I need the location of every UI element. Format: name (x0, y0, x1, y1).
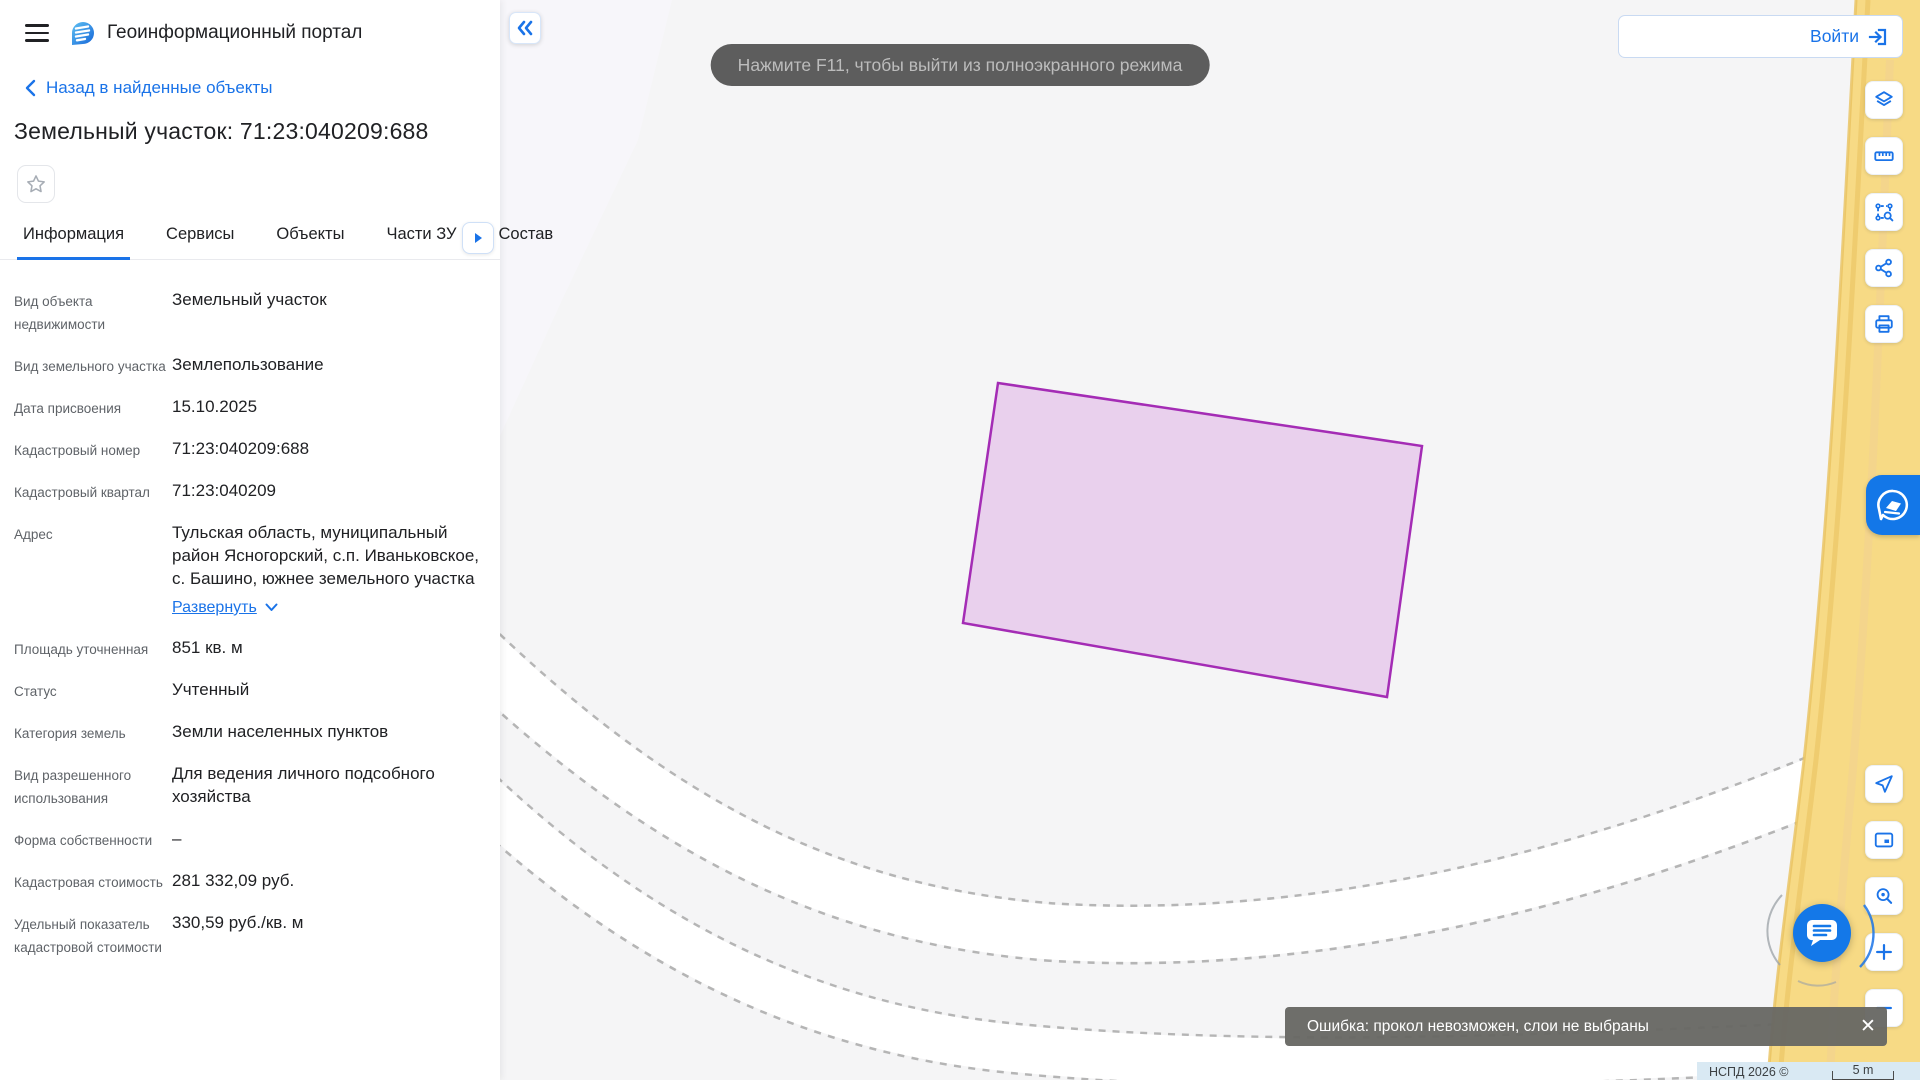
print-button[interactable] (1865, 305, 1903, 343)
field-value: Земли населенных пунктов (172, 720, 486, 745)
field-value: 71:23:040209 (172, 479, 486, 504)
field-label: Кадастровый номер (14, 437, 172, 462)
map-canvas[interactable] (500, 0, 1920, 1080)
layers-icon (1873, 89, 1895, 111)
field-list: Вид объекта недвижимостиЗемельный участо… (0, 260, 500, 959)
tab-0[interactable]: Информация (17, 225, 130, 260)
field-row: Кадастровый квартал71:23:040209 (14, 479, 486, 504)
share-icon (1873, 257, 1895, 279)
fullscreen-hint-toast: Нажмите F11, чтобы выйти из полноэкранно… (711, 44, 1210, 86)
star-icon (25, 173, 47, 195)
menu-icon[interactable] (25, 24, 49, 42)
page-title: Земельный участок: 71:23:040209:688 (14, 118, 486, 145)
collapse-panel-button[interactable] (509, 12, 541, 44)
favorite-button[interactable] (17, 165, 55, 203)
field-row: Форма собственности– (14, 827, 486, 852)
field-label: Адрес (14, 521, 172, 619)
expand-address-link[interactable]: Развернуть (172, 596, 278, 619)
field-row: СтатусУчтенный (14, 678, 486, 703)
field-value: 71:23:040209:688 (172, 437, 486, 462)
field-value: 851 кв. м (172, 636, 486, 661)
nspd-logo-tab[interactable] (1866, 475, 1920, 535)
map-attribution: НСПД 2026 © (1709, 1065, 1788, 1079)
chat-bubble-icon (1806, 918, 1838, 948)
tab-3[interactable]: Части ЗУ (380, 225, 462, 259)
chevron-down-icon (265, 603, 278, 612)
field-label: Вид разрешенного использования (14, 762, 172, 810)
field-value: Для ведения личного подсобного хозяйства (172, 762, 486, 810)
attribution-bar: НСПД 2026 © 5 m (1697, 1062, 1920, 1080)
panel-header: Геоинформационный портал (0, 0, 500, 48)
field-value: 330,59 руб./кв. м (172, 911, 486, 959)
field-label: Категория земель (14, 720, 172, 745)
select-area-button[interactable] (1865, 193, 1903, 231)
field-row: Кадастровая стоимость281 332,09 руб. (14, 869, 486, 894)
field-label: Форма собственности (14, 827, 172, 852)
field-value: Учтенный (172, 678, 486, 703)
tab-4[interactable]: Состав (493, 225, 560, 259)
locate-icon (1873, 773, 1895, 795)
field-row: Вид разрешенного использованияДля ведени… (14, 762, 486, 810)
field-row: АдресТульская область, муниципальный рай… (14, 521, 486, 619)
field-label: Дата присвоения (14, 395, 172, 420)
share-button[interactable] (1865, 249, 1903, 287)
field-label: Кадастровый квартал (14, 479, 172, 504)
field-row: Кадастровый номер71:23:040209:688 (14, 437, 486, 462)
tab-scroll-right-button[interactable] (462, 222, 494, 254)
field-row: Вид объекта недвижимостиЗемельный участо… (14, 288, 486, 336)
app-title: Геоинформационный портал (107, 22, 362, 44)
double-chevron-left-icon (516, 20, 534, 36)
login-button-label: Войти (1810, 26, 1859, 47)
chat-button[interactable] (1793, 904, 1851, 962)
field-label: Удельный показатель кадастровой стоимост… (14, 911, 172, 959)
field-value: Тульская область, муниципальный район Яс… (172, 521, 486, 619)
layers-button[interactable] (1865, 81, 1903, 119)
field-label: Статус (14, 678, 172, 703)
field-label: Вид земельного участка (14, 353, 172, 378)
error-toast-text: Ошибка: прокол невозможен, слои не выбра… (1307, 1018, 1649, 1036)
field-label: Вид объекта недвижимости (14, 288, 172, 336)
login-bar: Войти (1618, 15, 1903, 58)
field-value: Земельный участок (172, 288, 486, 336)
field-value: Землепользование (172, 353, 486, 378)
field-value: – (172, 827, 486, 852)
chevron-right-icon (473, 232, 483, 244)
back-link-label: Назад в найденные объекты (46, 78, 272, 98)
tab-bar: ИнформацияСервисыОбъектыЧасти ЗУСостав (0, 225, 500, 260)
tab-list: ИнформацияСервисыОбъектыЧасти ЗУСостав (0, 225, 500, 259)
print-icon (1873, 313, 1895, 335)
ruler-icon (1873, 145, 1895, 167)
field-row: Дата присвоения15.10.2025 (14, 395, 486, 420)
search-input[interactable] (1633, 28, 1810, 46)
select-area-icon (1873, 201, 1895, 223)
field-label: Кадастровая стоимость (14, 869, 172, 894)
app-logo-icon (67, 18, 97, 48)
field-row: Вид земельного участкаЗемлепользование (14, 353, 486, 378)
chat-widget (1758, 869, 1886, 997)
field-label: Площадь уточненная (14, 636, 172, 661)
overview-map-button[interactable] (1865, 821, 1903, 859)
back-link[interactable]: Назад в найденные объекты (25, 78, 500, 98)
ruler-button[interactable] (1865, 137, 1903, 175)
map-render (500, 0, 1920, 1080)
object-info-panel: Геоинформационный портал Назад в найденн… (0, 0, 500, 1080)
login-button[interactable]: Войти (1810, 26, 1888, 47)
login-icon (1868, 27, 1888, 47)
tab-2[interactable]: Объекты (270, 225, 350, 259)
tab-1[interactable]: Сервисы (160, 225, 240, 259)
close-icon[interactable]: ✕ (1849, 1007, 1887, 1046)
field-row: Площадь уточненная851 кв. м (14, 636, 486, 661)
field-row: Категория земельЗемли населенных пунктов (14, 720, 486, 745)
overview-map-icon (1873, 829, 1895, 851)
chevron-left-icon (25, 79, 36, 97)
map-toolbar-top (1865, 81, 1903, 343)
field-row: Удельный показатель кадастровой стоимост… (14, 911, 486, 959)
scale-bar: 5 m (1832, 1071, 1894, 1080)
field-value: 15.10.2025 (172, 395, 486, 420)
nspd-logo-icon (1875, 487, 1911, 523)
scale-label: 5 m (1833, 1063, 1893, 1077)
error-toast: Ошибка: прокол невозможен, слои не выбра… (1285, 1007, 1887, 1046)
locate-button[interactable] (1865, 765, 1903, 803)
field-value: 281 332,09 руб. (172, 869, 486, 894)
